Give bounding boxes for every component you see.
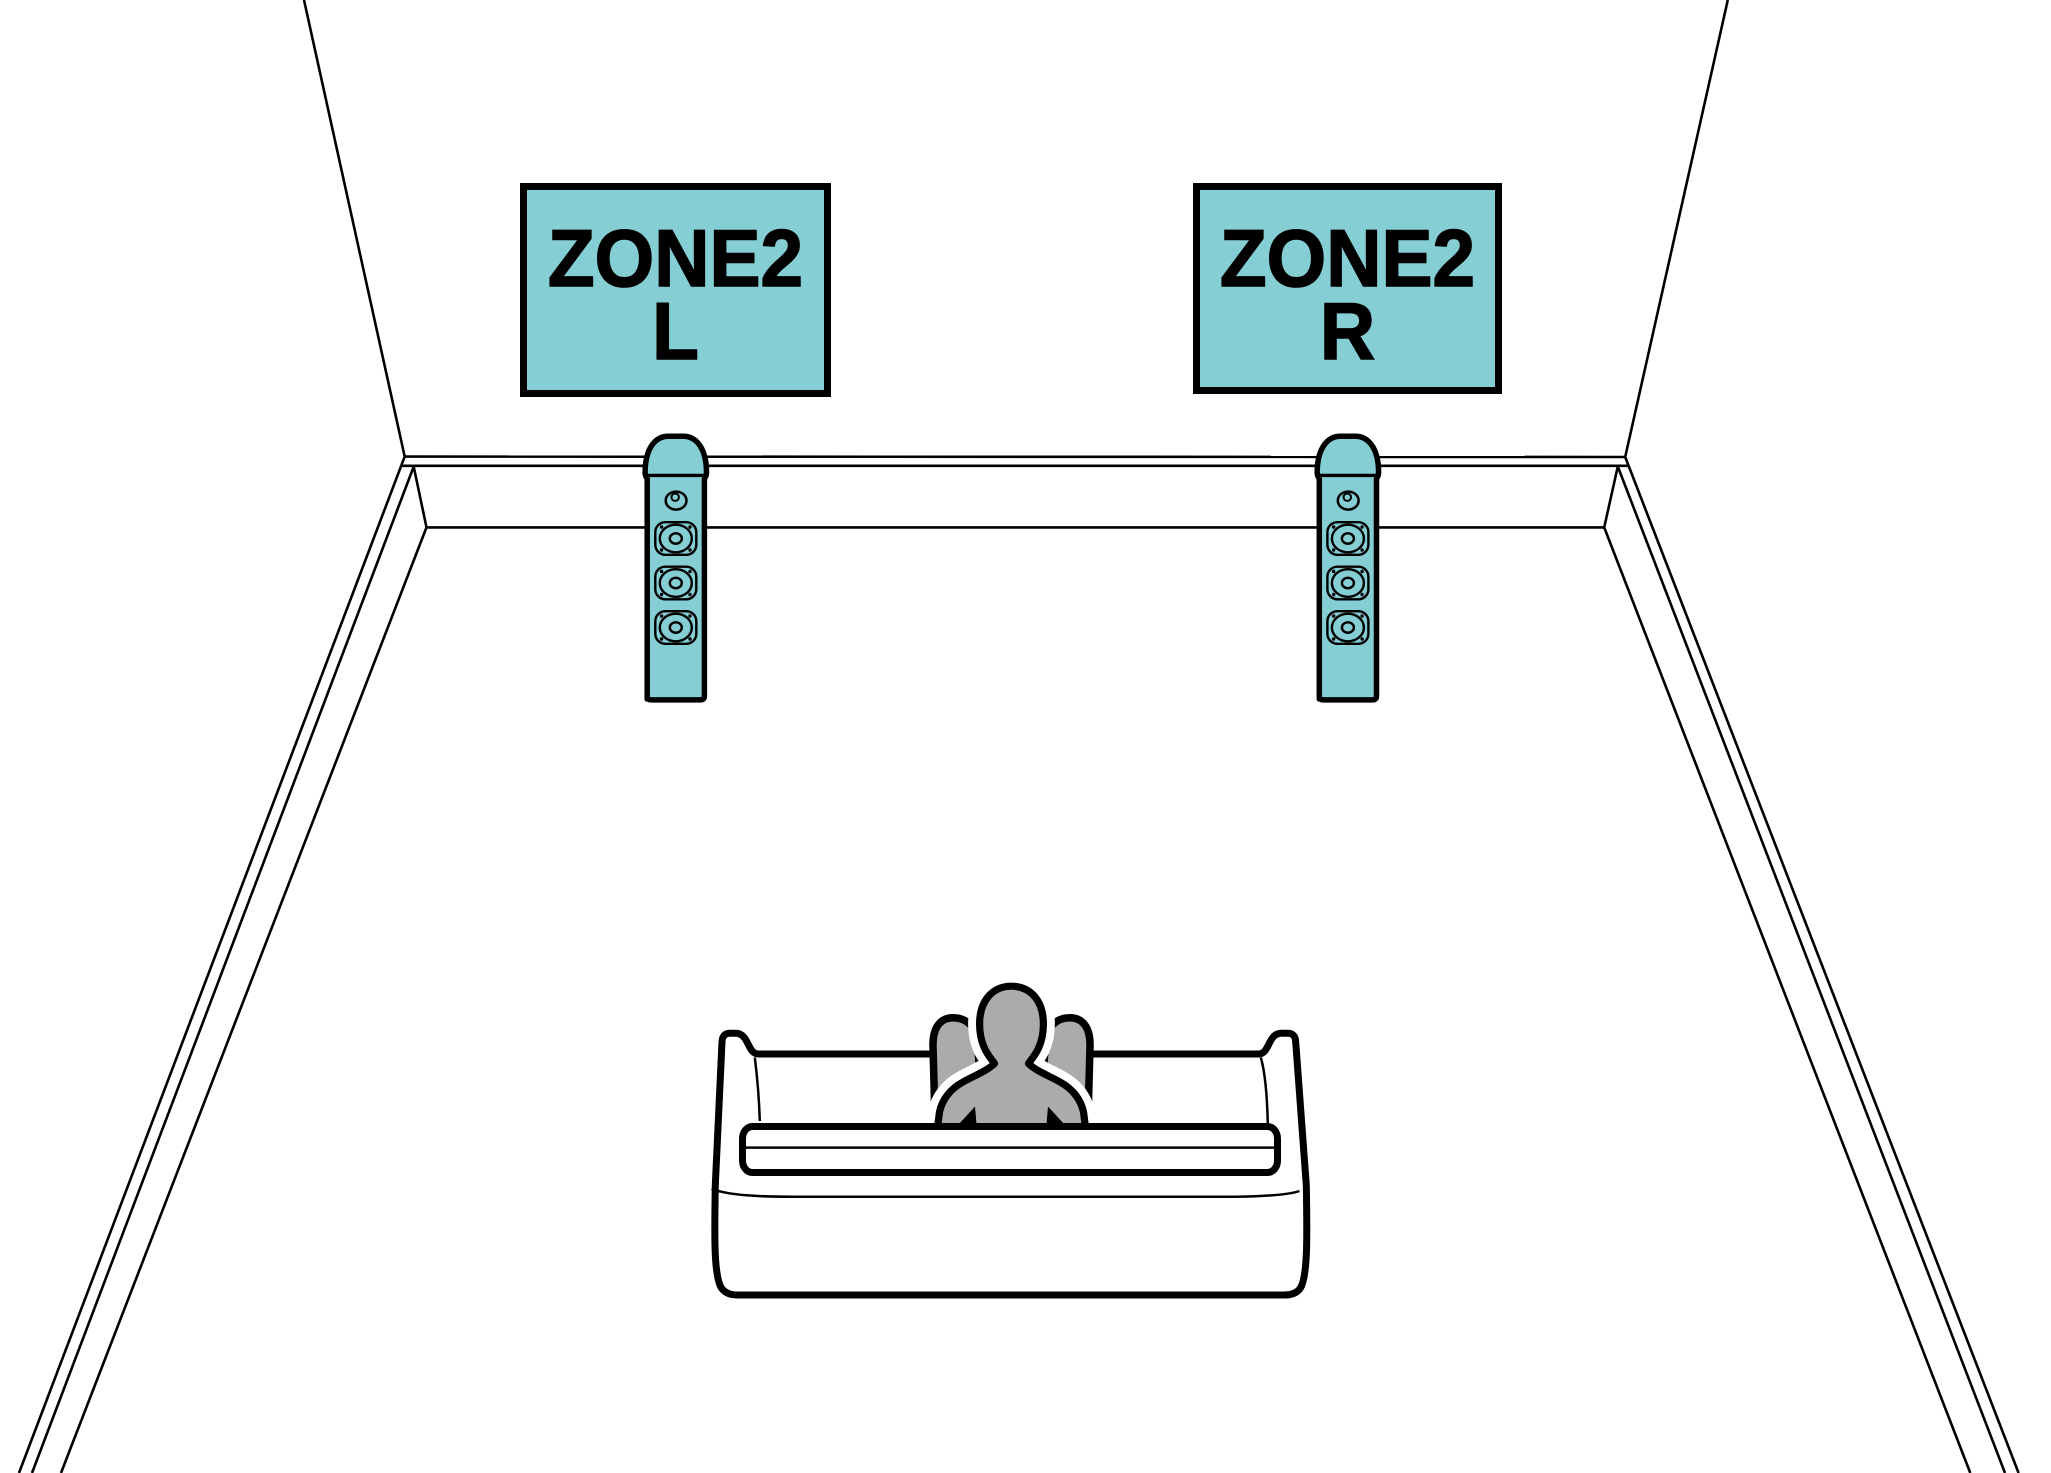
svg-text:L: L bbox=[652, 286, 699, 376]
svg-text:R: R bbox=[1320, 286, 1375, 376]
